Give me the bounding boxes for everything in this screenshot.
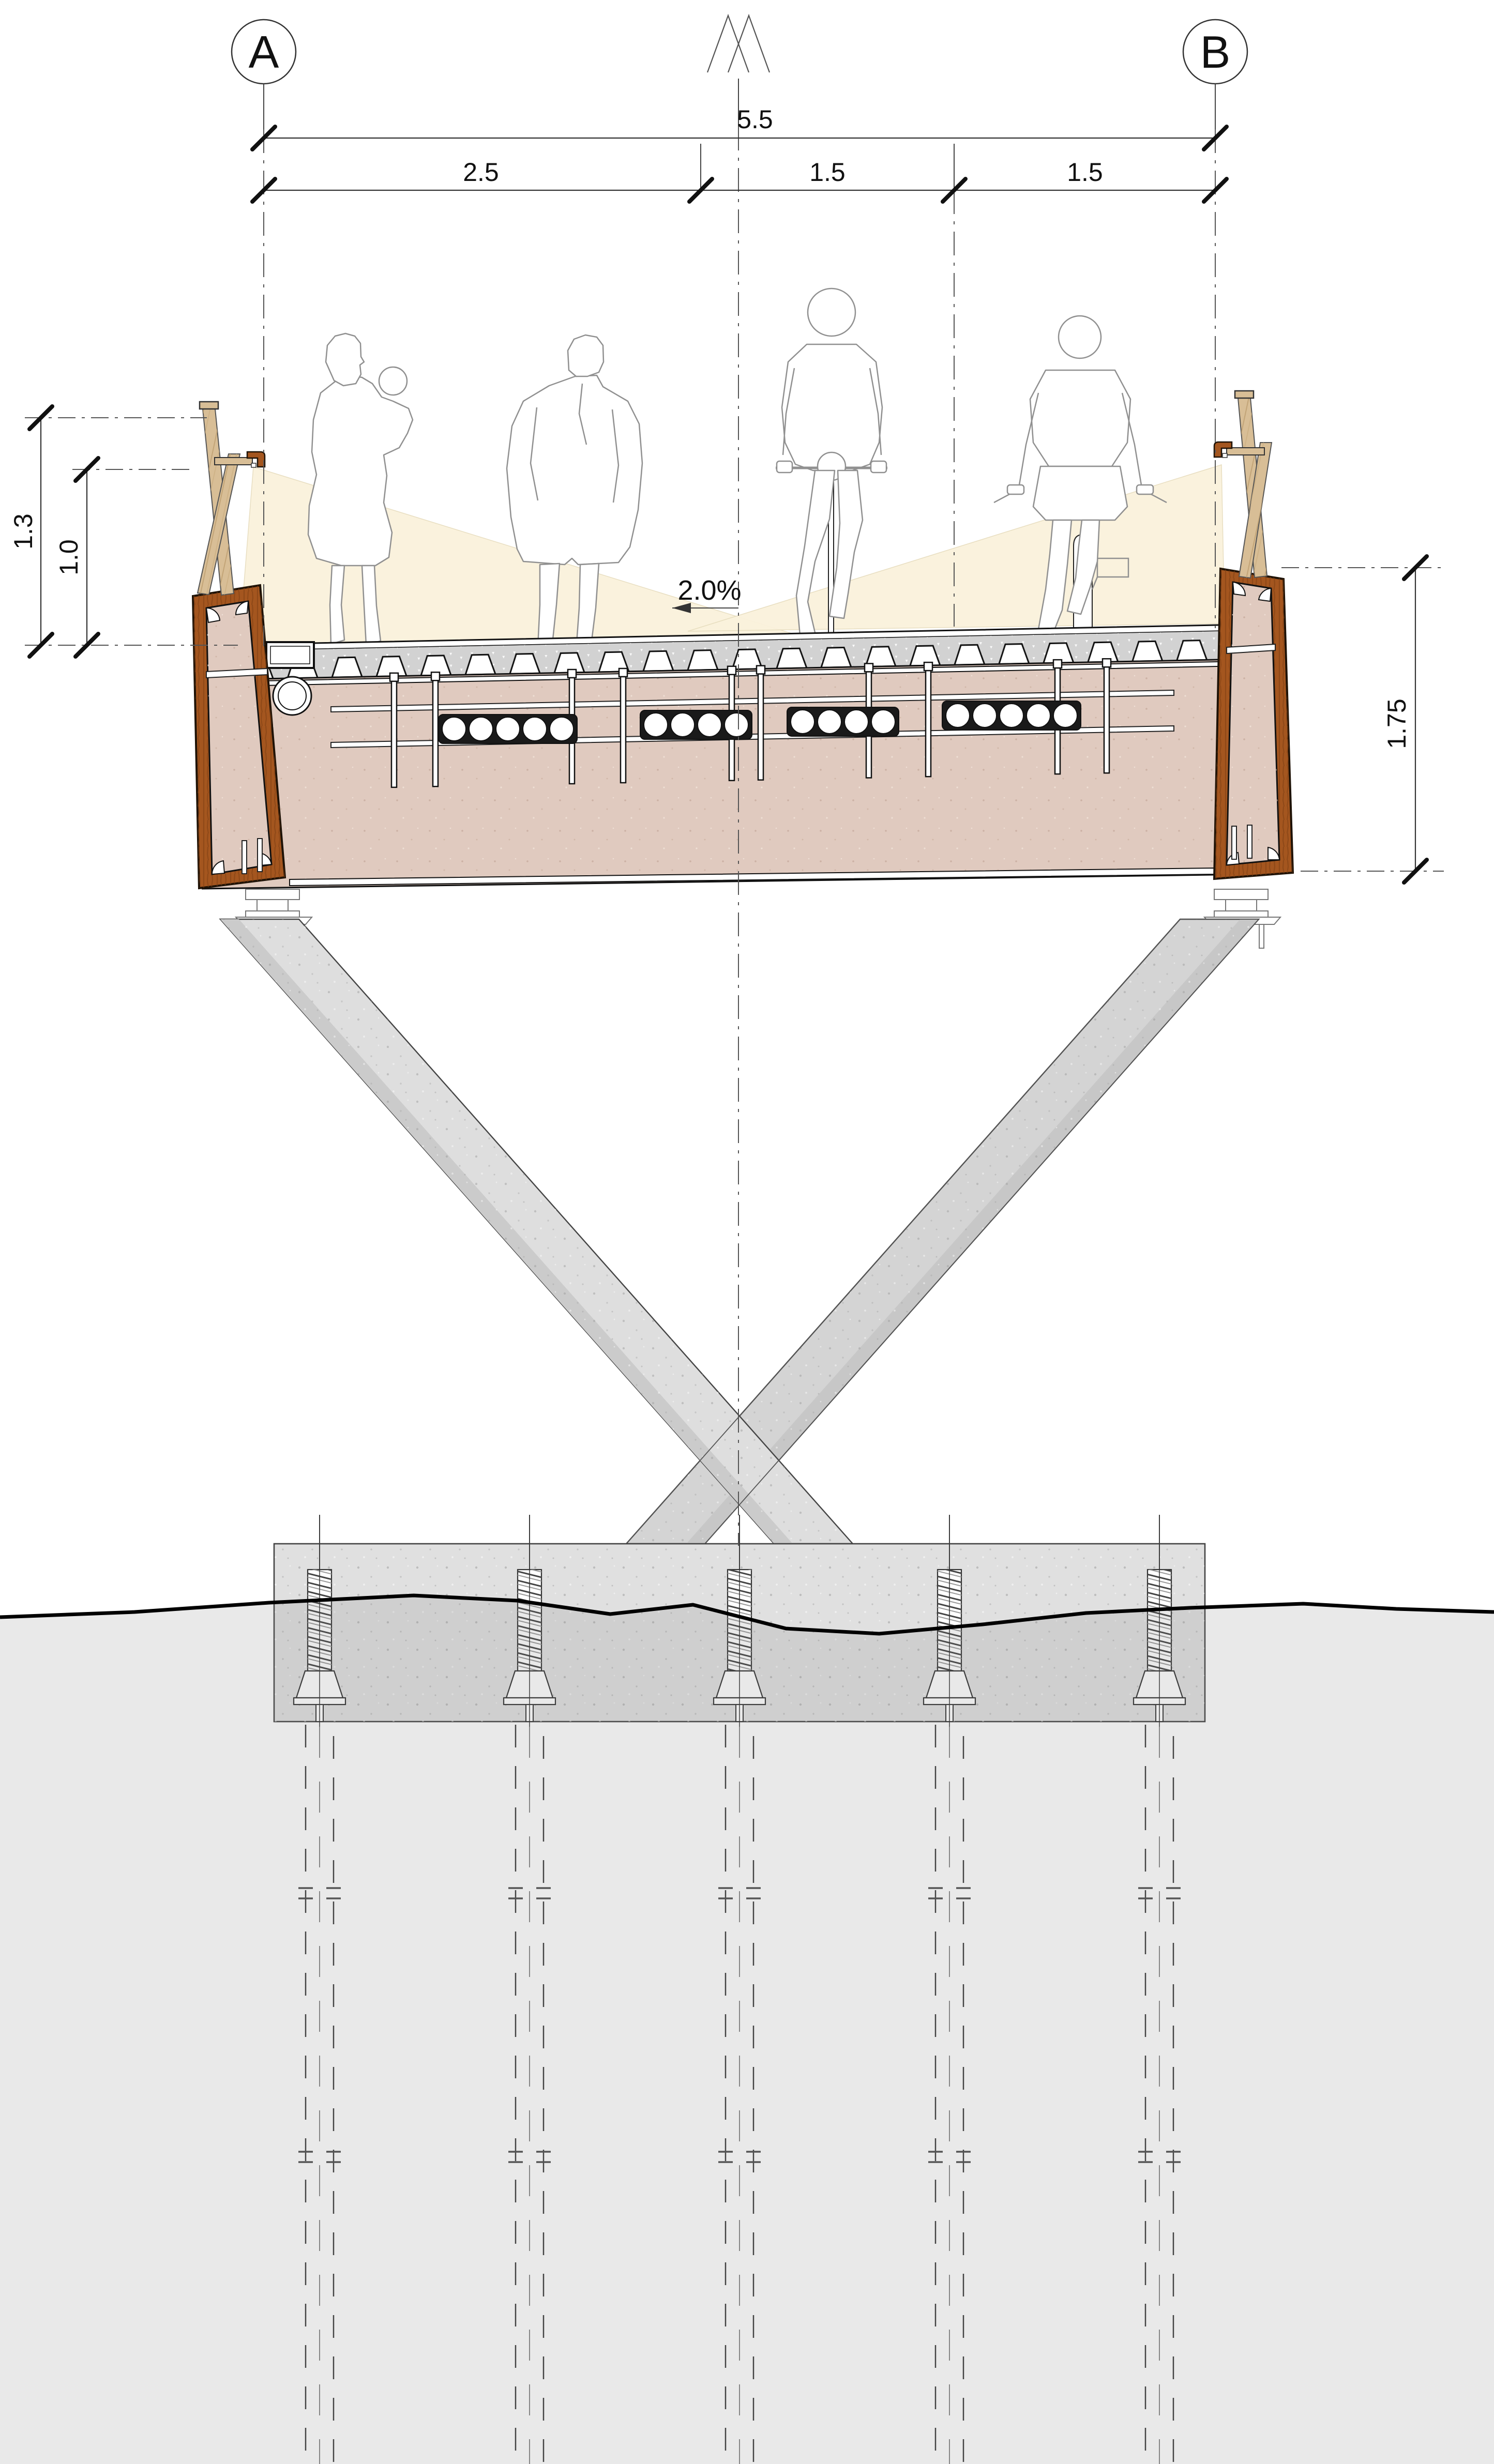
stirrup-hook: [865, 663, 873, 672]
deck-superstructure: [202, 625, 1277, 889]
rail-right-post-cap: [1235, 391, 1254, 398]
dim-parapet-value: 1.0: [54, 539, 83, 575]
duct-circle: [1000, 704, 1023, 727]
rail-left-post-cap: [200, 402, 218, 409]
stirrup-bar: [758, 674, 763, 780]
stirrup-hook: [728, 666, 736, 675]
stirrup-hook: [431, 672, 440, 680]
woman-head: [326, 333, 364, 386]
duct-circle: [1053, 704, 1077, 727]
man-head: [568, 335, 603, 376]
duct-circle: [671, 713, 695, 737]
child-head: [379, 367, 407, 395]
girder-right-infill-speckle: [1227, 582, 1279, 865]
stirrup-bar: [1104, 667, 1109, 773]
dim-lane-right-value: 1.5: [1067, 158, 1103, 187]
cyclist2-hand-left: [1007, 485, 1024, 494]
rail-right-lamp-lens: [1223, 453, 1227, 458]
duct-circle: [442, 717, 466, 741]
substructure: [0, 889, 1494, 2464]
rail-left-lamp-lens: [251, 463, 256, 467]
duct-circle: [469, 717, 493, 741]
pier-leg-left-speckle: [220, 919, 853, 1544]
cyclist2-torso: [1030, 370, 1130, 466]
cyclist1-torso: [782, 344, 882, 470]
dim-walkway-value: 2.5: [463, 158, 499, 187]
stirrup-hook: [619, 668, 627, 677]
bridge-cross-section-drawing: A B 5.5 2.5 1.5 1.5: [0, 0, 1494, 2464]
stirrup-hook: [1053, 660, 1062, 668]
duct-circle: [523, 717, 547, 741]
man-coat: [507, 375, 642, 565]
duct-circle: [644, 713, 668, 737]
dimension-superstructure-depth: 1.75: [1281, 556, 1444, 883]
stirrup-hook: [924, 662, 932, 671]
dim-depth-value: 1.75: [1382, 698, 1411, 749]
dim-total-width-value: 5.5: [737, 105, 773, 134]
cyclist2-hips: [1033, 466, 1127, 520]
duct-circle: [550, 717, 574, 741]
stirrup-hook: [757, 666, 765, 674]
cyclist2-head: [1059, 316, 1101, 358]
duct-circle: [973, 704, 997, 727]
drain-pipe-inner: [278, 682, 306, 710]
dim-parapet-upper-value: 1.3: [9, 513, 38, 550]
dimension-total-width: 5.5: [252, 105, 1227, 149]
duct-circle: [871, 710, 895, 734]
ground-fill: [0, 1595, 1494, 2464]
duct-circle: [844, 710, 868, 734]
duct-circle: [698, 713, 721, 737]
cyclist2-hand-right: [1137, 485, 1153, 494]
edge-girder-right: [1214, 569, 1293, 879]
grid-axis-a-label: A: [249, 26, 279, 78]
stirrup-hook: [1103, 659, 1111, 667]
cyclist1-hand-left: [777, 461, 792, 473]
dim-lane-left-value: 1.5: [809, 158, 846, 187]
stirrup-bar: [433, 680, 438, 786]
duct-circle: [1027, 704, 1050, 727]
duct-circle: [818, 710, 841, 734]
v-pier: [220, 919, 1259, 1544]
stirrup-bar: [926, 671, 931, 777]
bike2-brake-left: [994, 494, 1009, 503]
cyclist1-head: [808, 288, 855, 336]
dimension-lanes: 2.5 1.5 1.5: [252, 144, 1227, 202]
stirrup-hook: [568, 670, 576, 678]
centerline-symbol: [707, 16, 769, 72]
cross-slope-value: 2.0%: [677, 575, 741, 606]
cyclist1-hand-right: [871, 461, 886, 473]
grid-axis-b-label: B: [1200, 26, 1231, 78]
stirrup-bar: [621, 677, 626, 783]
girder-left-stud-1: [242, 841, 247, 874]
duct-circle: [946, 704, 970, 727]
girder-left-stud-2: [258, 839, 262, 872]
girder-right-stud-2: [1247, 825, 1252, 858]
duct-circle: [725, 713, 748, 737]
duct-circle: [791, 710, 814, 734]
duct-circle: [496, 717, 520, 741]
girder-right-stud-1: [1232, 826, 1236, 859]
kerb-channel-inner: [270, 646, 310, 664]
stirrup-bar: [391, 681, 397, 787]
stirrup-hook: [390, 673, 398, 681]
